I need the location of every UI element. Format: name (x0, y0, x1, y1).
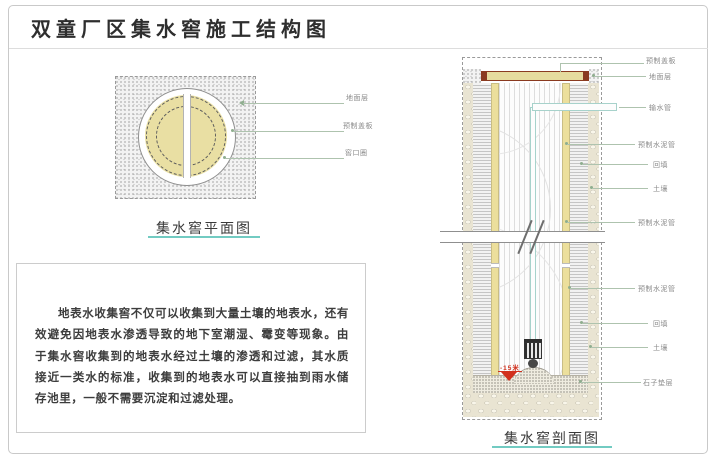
section-label-outlet-pipe: 输水管 (649, 103, 672, 113)
section-label-cement-pipe-3: 预制水泥管 (638, 284, 676, 294)
section-label-soil-1: 土壤 (653, 184, 668, 194)
leader-line (570, 288, 635, 289)
pump-coupling (528, 359, 538, 368)
leader-line (594, 76, 646, 77)
section-backfill-left (473, 83, 491, 377)
section-caption: 集水窖剖面图 (492, 428, 612, 448)
section-caption-underline (492, 446, 612, 448)
page-title: 双童厂区集水窖施工结构图 (31, 13, 331, 42)
leader-line (582, 323, 648, 324)
section-soil-left (463, 83, 473, 417)
title-divider (9, 48, 708, 49)
section-ground-left (463, 69, 481, 83)
section-label-precast-cover: 预制盖板 (646, 56, 676, 66)
section-label-soil-2: 土壤 (653, 343, 668, 353)
leader-line (225, 158, 344, 159)
leader-line (592, 188, 648, 189)
section-soil-right (588, 83, 599, 417)
leader-line (567, 222, 635, 223)
wall-joint (491, 263, 499, 268)
section-label-ground-layer: 地面层 (649, 72, 672, 82)
plan-label-precast-cover: 预制盖板 (343, 121, 373, 131)
leader-line (581, 382, 641, 383)
drawing-sheet: 双童厂区集水窖施工结构图 地面层 预制盖板 窖口圈 集水窖平面图 地表水收集窖不… (0, 0, 719, 459)
cover-plate-cap-left (481, 71, 487, 81)
section-soil-bottom (463, 392, 599, 417)
section-label-backfill-2: 回填 (653, 319, 668, 329)
leader-line (560, 63, 644, 64)
plan-plate-gap (183, 94, 191, 178)
plan-caption: 集水窖平面图 (148, 218, 260, 238)
leader-line (582, 164, 648, 165)
leader-line (567, 144, 635, 145)
section-backfill-right (570, 83, 588, 377)
section-label-gravel-cushion: 石子垫层 (643, 378, 673, 388)
plan-caption-underline (148, 236, 260, 238)
section-label-cement-pipe-1: 预制水泥管 (638, 140, 676, 150)
depth-marker-triangle (501, 372, 517, 381)
leader-line (560, 63, 561, 72)
description-box: 地表水收集窖不仅可以收集到大量土壤的地表水，还有效避免因地表水渗透导致的地下室潮… (16, 263, 366, 433)
description-text: 地表水收集窖不仅可以收集到大量土壤的地表水，还有效避免因地表水渗透导致的地下室潮… (35, 304, 349, 410)
cover-plate-cap-right (583, 71, 589, 81)
outlet-pipe (532, 103, 617, 111)
section-label-cement-pipe-2: 预制水泥管 (638, 218, 676, 228)
leader-line (233, 131, 344, 132)
section-cover-plate (481, 71, 589, 81)
leader-line (619, 107, 646, 108)
wall-joint (562, 263, 570, 268)
pump-body (524, 342, 542, 359)
leader-line (243, 103, 344, 104)
plan-label-ground-layer: 地面层 (346, 93, 369, 103)
section-wall-left (491, 83, 499, 377)
section-wall-right (562, 83, 570, 377)
leader-line (591, 347, 648, 348)
plan-label-mouth-ring: 窖口圈 (345, 148, 368, 158)
section-label-backfill-1: 回填 (653, 160, 668, 170)
